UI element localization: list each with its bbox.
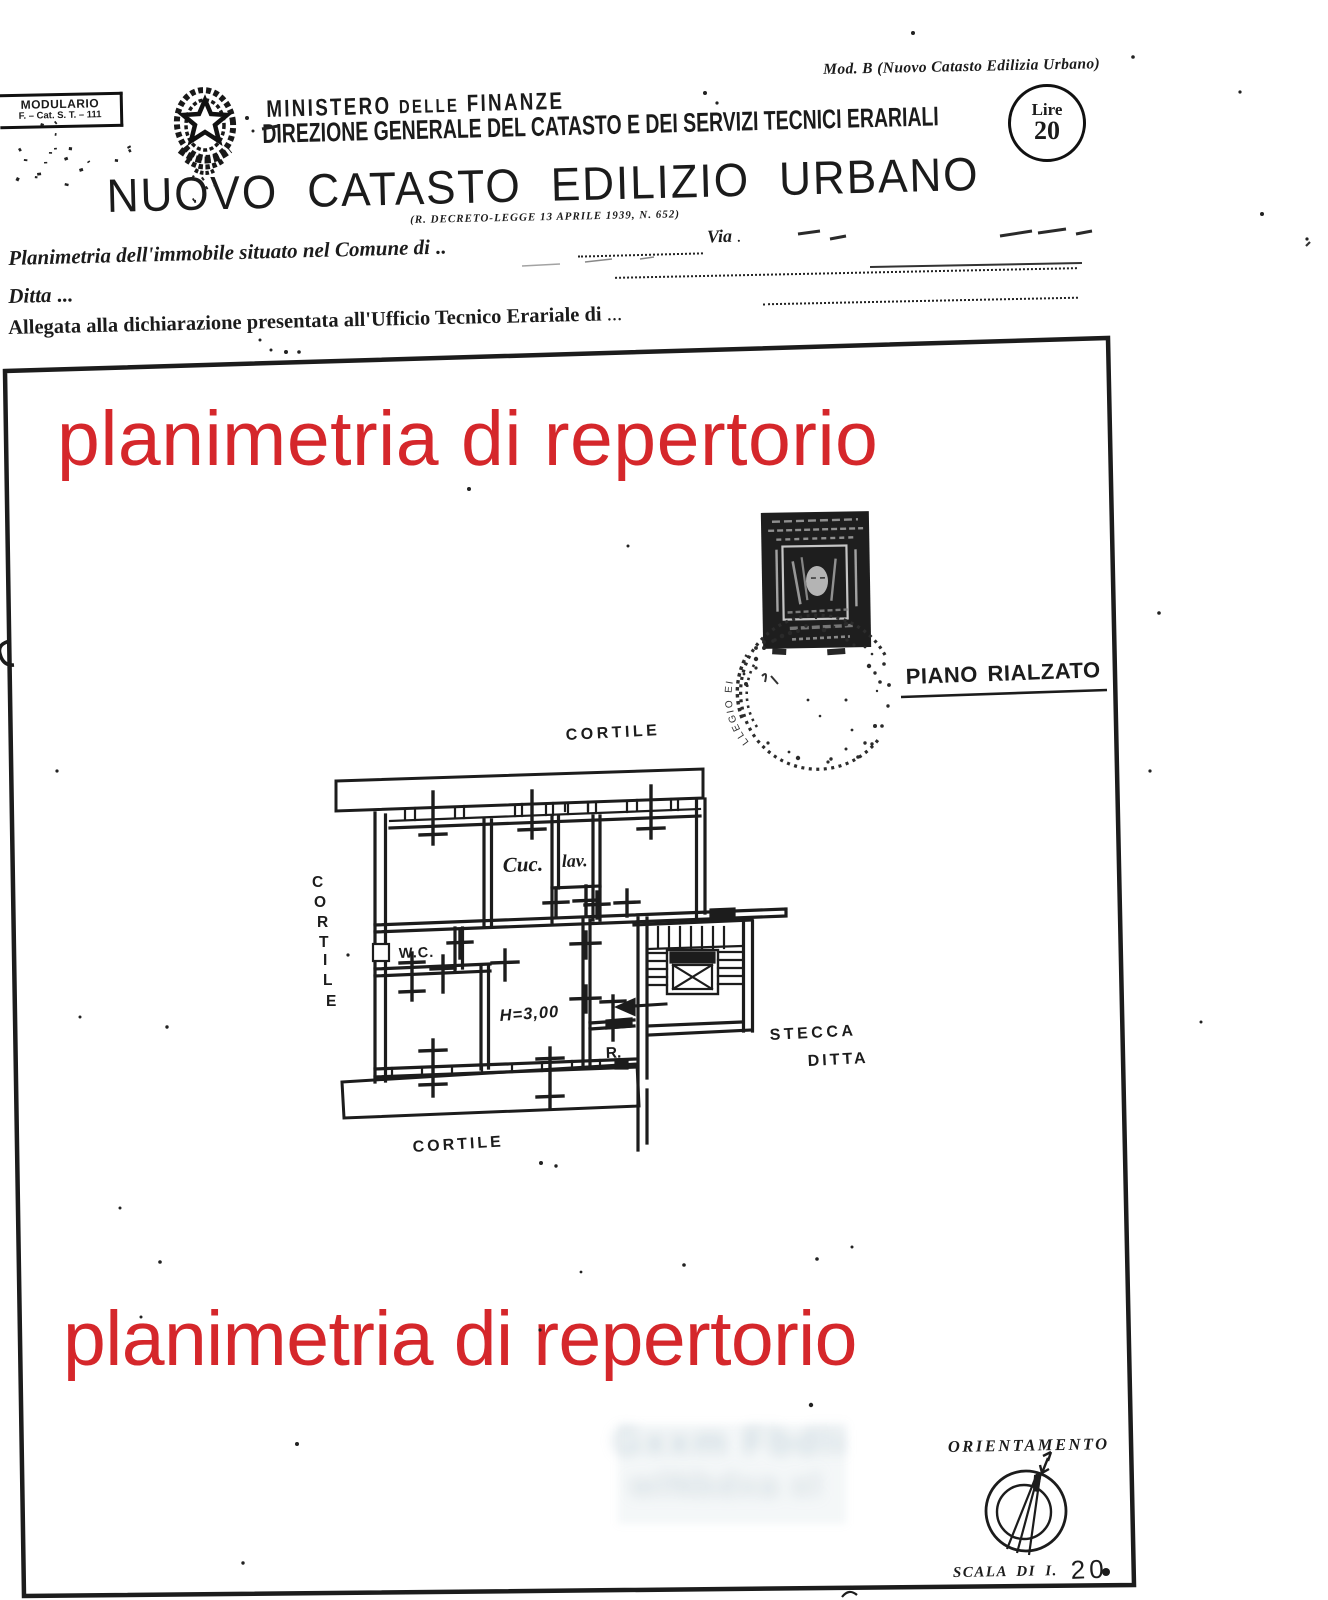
svg-text:SCALA DI I.: SCALA DI I.: [953, 1563, 1058, 1581]
svg-text:E: E: [326, 993, 336, 1010]
svg-text:STECCA: STECCA: [769, 1022, 857, 1044]
svg-text:DITTA: DITTA: [807, 1050, 869, 1070]
svg-text:R: R: [317, 914, 328, 931]
svg-text:PIANO RIALZATO: PIANO RIALZATO: [905, 657, 1101, 689]
svg-text:CORTILE: CORTILE: [565, 722, 660, 744]
svg-text:C: C: [312, 874, 323, 891]
svg-text:20: 20: [1070, 1554, 1108, 1585]
svg-text:L: L: [323, 972, 332, 989]
svg-text:H=3,00: H=3,00: [499, 1003, 560, 1025]
svg-text:I: I: [323, 952, 327, 969]
svg-text:lav.: lav.: [561, 850, 588, 871]
svg-text:ORIENTAMENTO: ORIENTAMENTO: [948, 1434, 1110, 1456]
svg-text:CORTILE: CORTILE: [412, 1133, 504, 1156]
svg-text:W.C.: W.C.: [399, 945, 435, 962]
svg-text:O: O: [314, 894, 326, 911]
svg-text:R.: R.: [606, 1044, 622, 1062]
svg-text:Cuc.: Cuc.: [502, 852, 543, 877]
svg-text:T: T: [319, 934, 329, 951]
